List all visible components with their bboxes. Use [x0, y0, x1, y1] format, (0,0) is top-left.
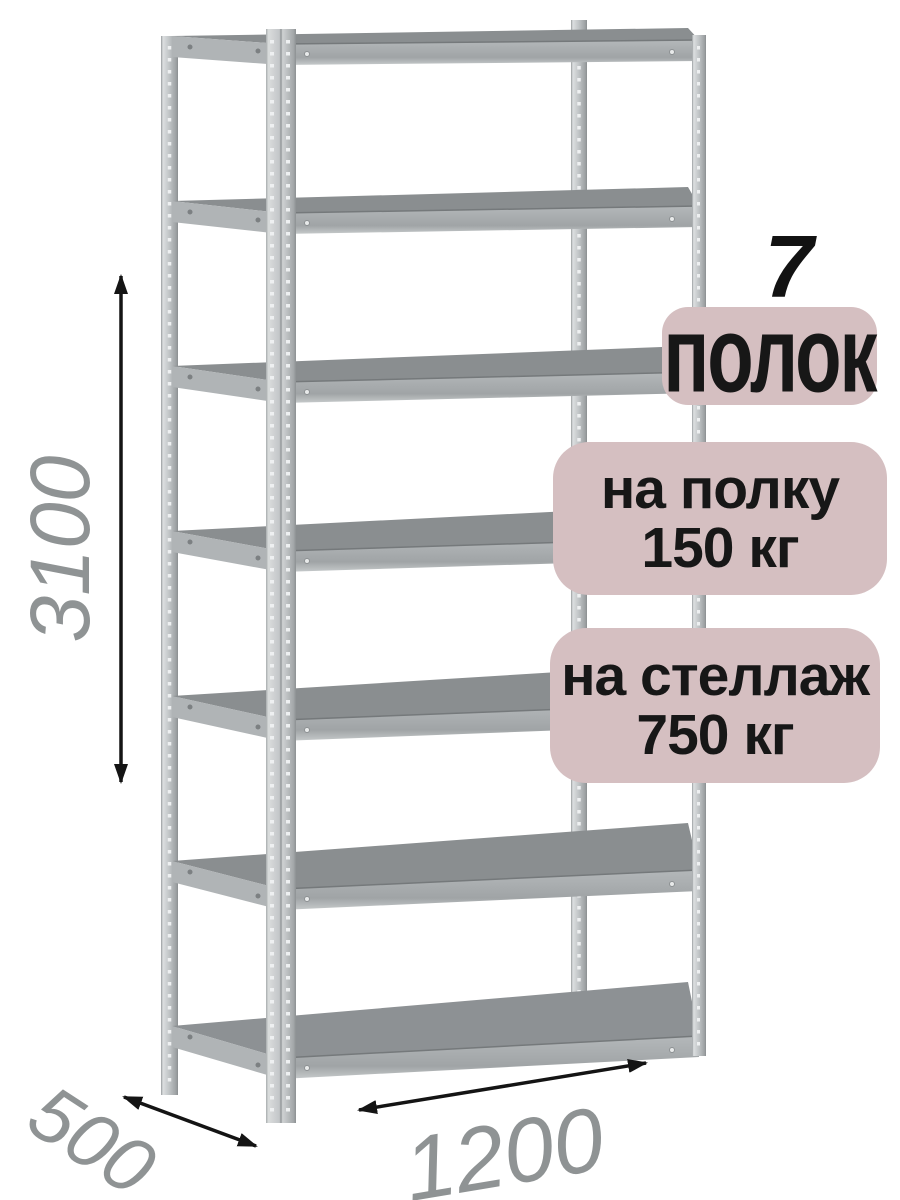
- shelf-count-badge-label: полок: [663, 302, 875, 410]
- shelf: [172, 187, 699, 234]
- rack-load-line1: на стеллаж: [561, 647, 869, 705]
- shelf-count-badge: полок: [662, 307, 877, 405]
- rack-load-line2: 750 кг: [636, 706, 793, 764]
- shelf-load-line2: 150 кг: [641, 519, 798, 577]
- height-dimension-label: 3100: [18, 456, 102, 643]
- product-card: 3100 500 1200 7 полок на полку 150 кг на…: [0, 0, 900, 1200]
- shelf: [172, 823, 699, 910]
- shelf: [172, 28, 699, 65]
- shelf-load-badge: на полку 150 кг: [553, 442, 887, 595]
- shelf: [172, 346, 699, 403]
- shelf-load-line1: на полку: [601, 460, 839, 518]
- shelving-rack-illustration: [0, 0, 900, 1200]
- shelf: [172, 982, 699, 1079]
- rack-load-badge: на стеллаж 750 кг: [550, 628, 880, 783]
